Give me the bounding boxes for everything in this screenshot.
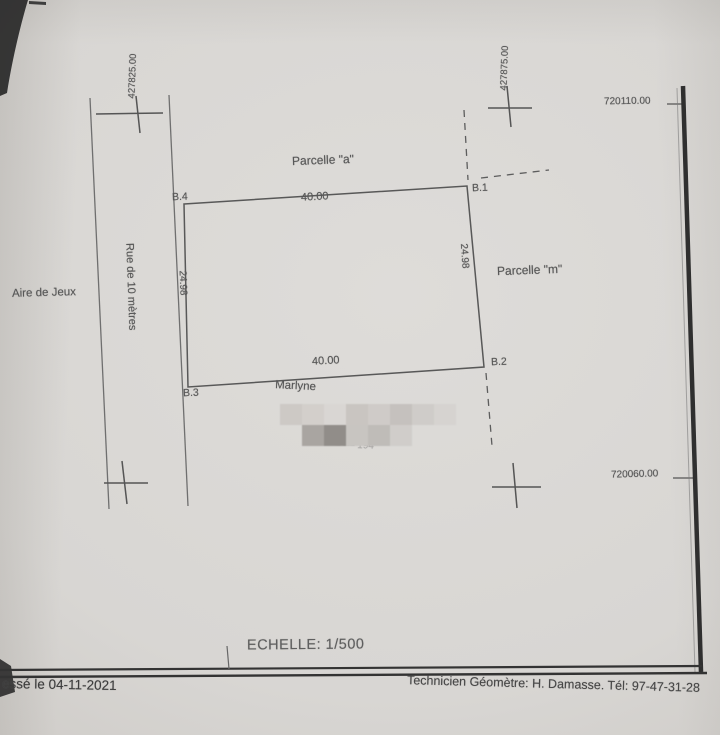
scale-label: ECHELLE: 1/500 xyxy=(247,636,365,653)
scan-artifacts xyxy=(0,0,46,697)
easting-label-left: 427825.00 xyxy=(126,38,139,98)
survey-cross-top-left xyxy=(96,96,163,133)
footer-date: essé le 04-11-2021 xyxy=(2,676,117,693)
survey-cross-bottom-right xyxy=(492,463,541,508)
dimension-top: 40.00 xyxy=(301,190,329,203)
sheet-frame xyxy=(0,86,707,677)
survey-cross-bottom-left xyxy=(104,461,148,504)
plan-linework xyxy=(0,0,720,735)
scanned-survey-plan: Parcelle "a" Parcelle "m" B.4 B.1 B.2 B.… xyxy=(0,0,720,735)
playground-label: Aire de Jeux xyxy=(12,286,76,300)
northing-label-top: 720110.00 xyxy=(604,96,651,108)
corner-label-b2: B.2 xyxy=(491,356,507,369)
street-lines xyxy=(90,95,188,509)
dashed-boundary-lines xyxy=(464,110,549,446)
survey-cross-top-right xyxy=(488,86,532,127)
dimension-bottom: 40.00 xyxy=(312,354,340,367)
corner-label-b4: B.4 xyxy=(172,191,188,204)
corner-label-b1: B.1 xyxy=(472,182,488,195)
parcel-a-label: Parcelle "a" xyxy=(292,152,354,168)
redaction-pixelation xyxy=(280,404,456,446)
parcel-m-label: Parcelle "m" xyxy=(497,262,563,278)
easting-label-right: 427875.00 xyxy=(498,30,511,90)
corner-label-b3: B.3 xyxy=(183,387,199,400)
northing-label-bottom: 720060.00 xyxy=(611,468,659,480)
dimension-left: 24.98 xyxy=(177,270,190,318)
